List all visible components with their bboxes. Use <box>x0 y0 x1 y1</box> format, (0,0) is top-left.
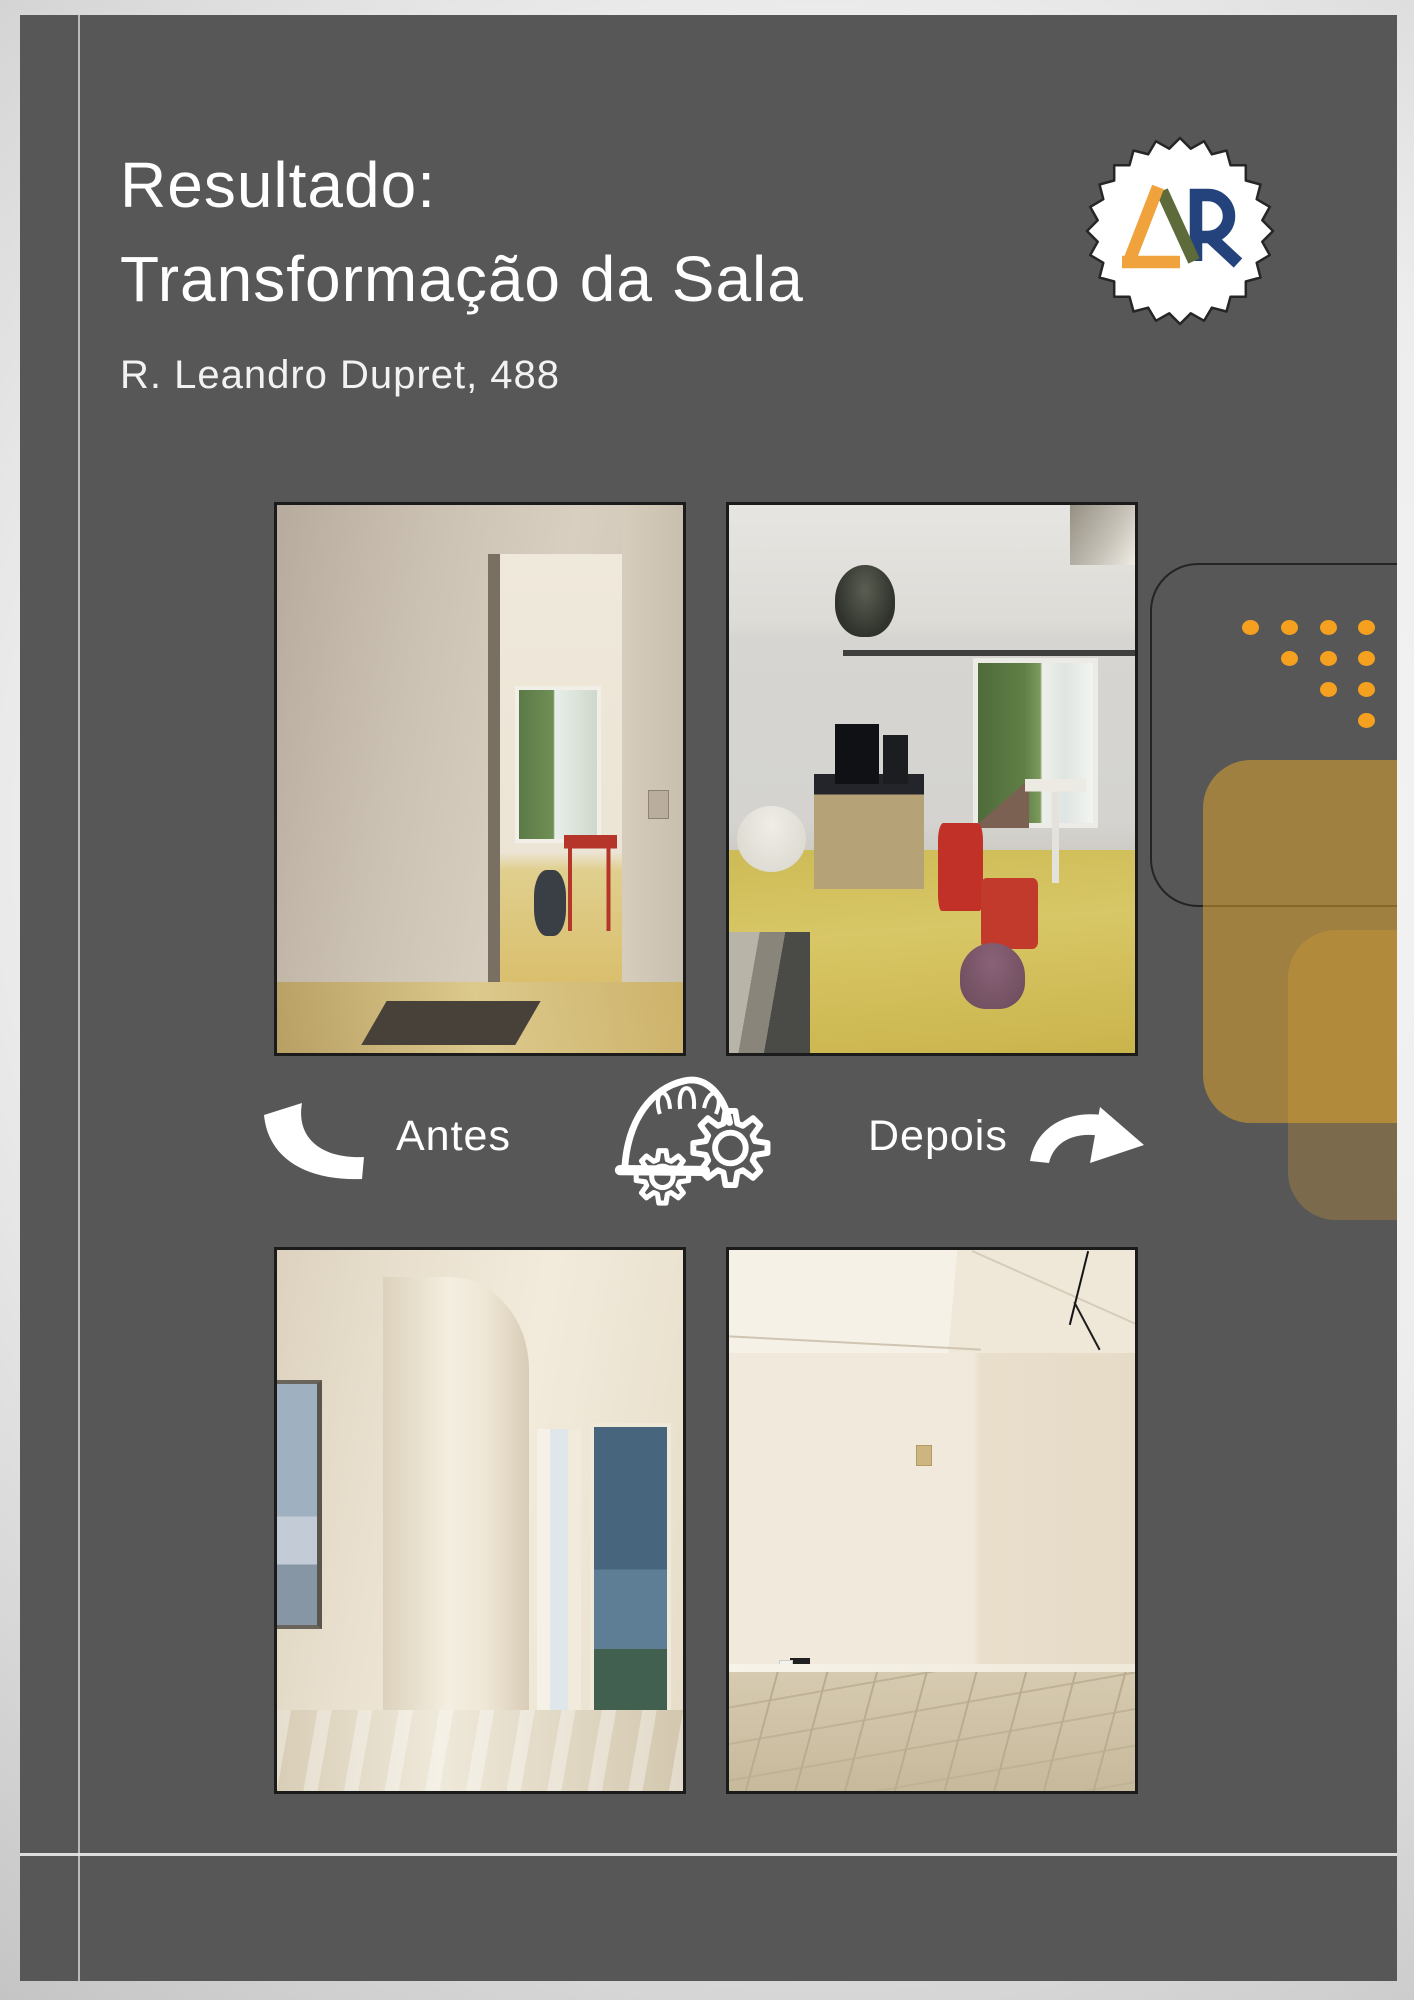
ceiling-lamp <box>835 565 896 636</box>
curved-arrow-left-icon <box>258 1101 384 1193</box>
photo-after-room <box>726 1247 1138 1794</box>
decor-orange-rect-2 <box>1288 930 1397 1220</box>
photo-before-room <box>726 502 1138 1056</box>
after-label: Depois <box>868 1112 1008 1161</box>
curved-arrow-right-icon <box>1026 1103 1148 1199</box>
photo-after-hallway <box>274 1247 686 1794</box>
red-chair <box>938 823 983 911</box>
monitor <box>835 724 880 784</box>
page-subtitle: R. Leandro Dupret, 488 <box>120 353 560 398</box>
lar-logo-badge <box>1080 131 1280 331</box>
page-title: Resultado: <box>120 153 436 217</box>
before-label: Antes <box>396 1112 511 1161</box>
doorway <box>590 1423 671 1748</box>
window <box>277 1380 322 1629</box>
window <box>515 686 601 843</box>
construction-helmet-gears-icon <box>608 1060 778 1236</box>
page-title-line2: Transformação da Sala <box>120 247 804 311</box>
bottom-guide-line <box>20 1853 1397 1856</box>
gear-icon <box>636 1151 688 1203</box>
left-guide-line <box>78 15 80 1981</box>
slide-card: Resultado: Transformação da Sala R. Lean… <box>20 15 1397 1981</box>
photo-before-hallway <box>274 502 686 1056</box>
